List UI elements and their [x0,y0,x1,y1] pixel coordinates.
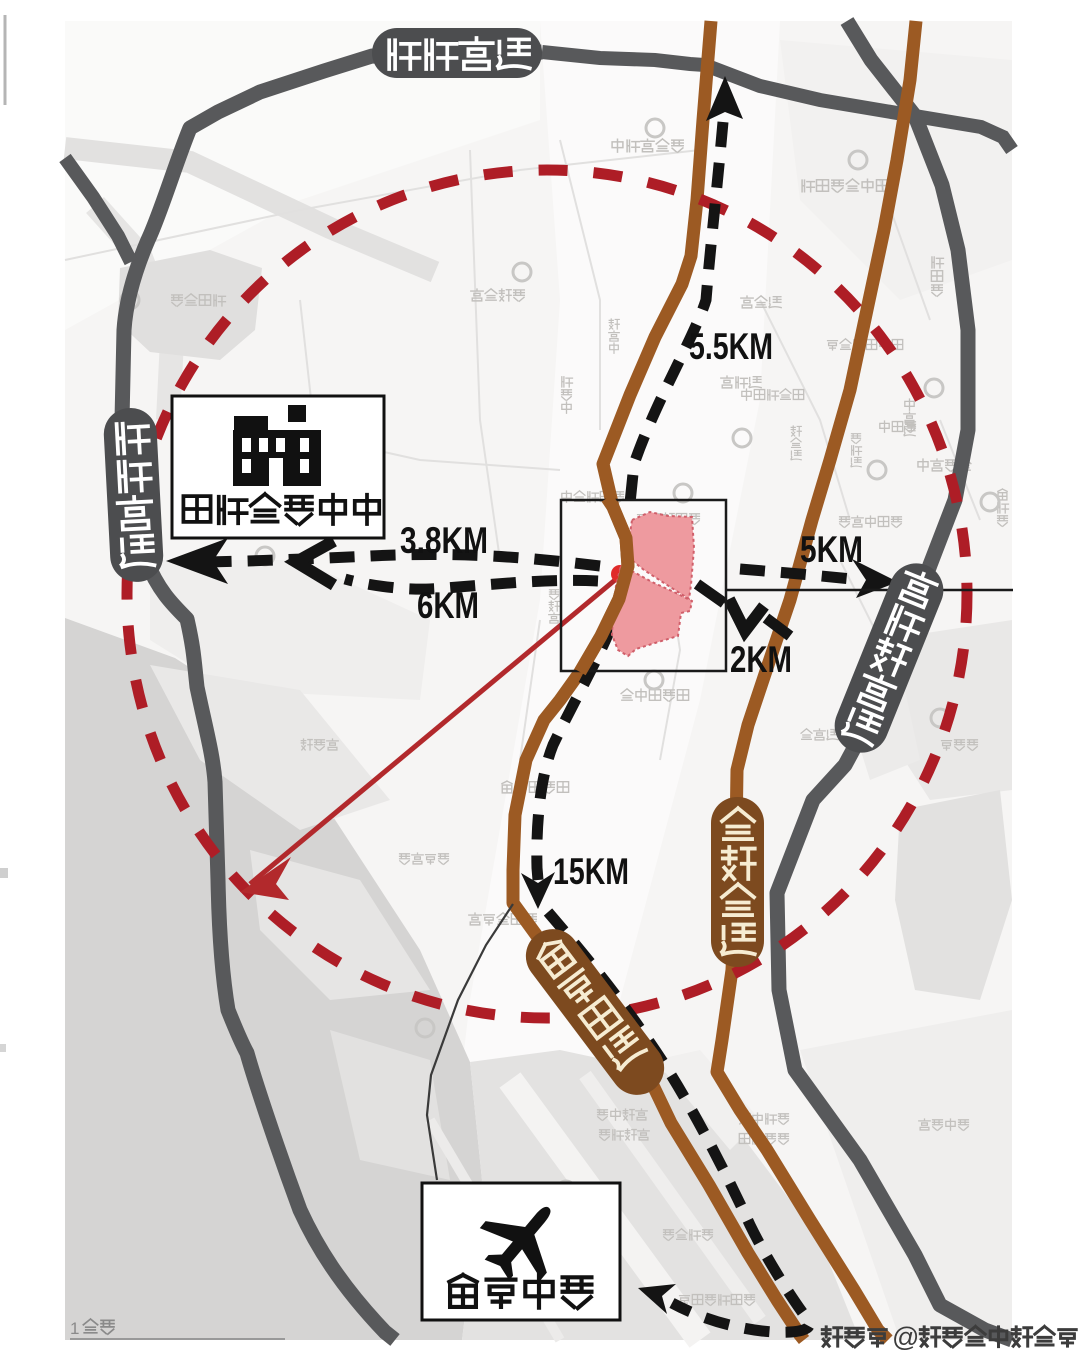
svg-text:2KM: 2KM [730,639,792,680]
svg-text:15KM: 15KM [553,851,629,892]
svg-text:6KM: 6KM [417,585,479,626]
svg-text:3.8KM: 3.8KM [400,520,488,561]
svg-text:5.5KM: 5.5KM [689,326,773,367]
svg-text:5KM: 5KM [800,529,863,570]
svg-text:1: 1 [70,1319,79,1338]
svg-text:@: @ [892,1322,919,1352]
